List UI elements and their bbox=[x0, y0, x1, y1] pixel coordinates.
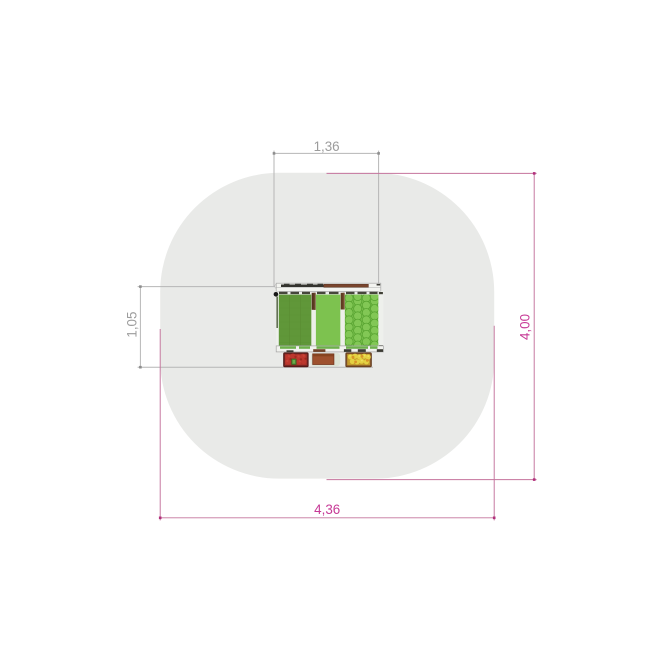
svg-text:4,36: 4,36 bbox=[314, 502, 340, 517]
svg-text:1,05: 1,05 bbox=[125, 312, 140, 338]
svg-text:1,36: 1,36 bbox=[314, 139, 340, 154]
svg-text:4,00: 4,00 bbox=[518, 314, 533, 340]
